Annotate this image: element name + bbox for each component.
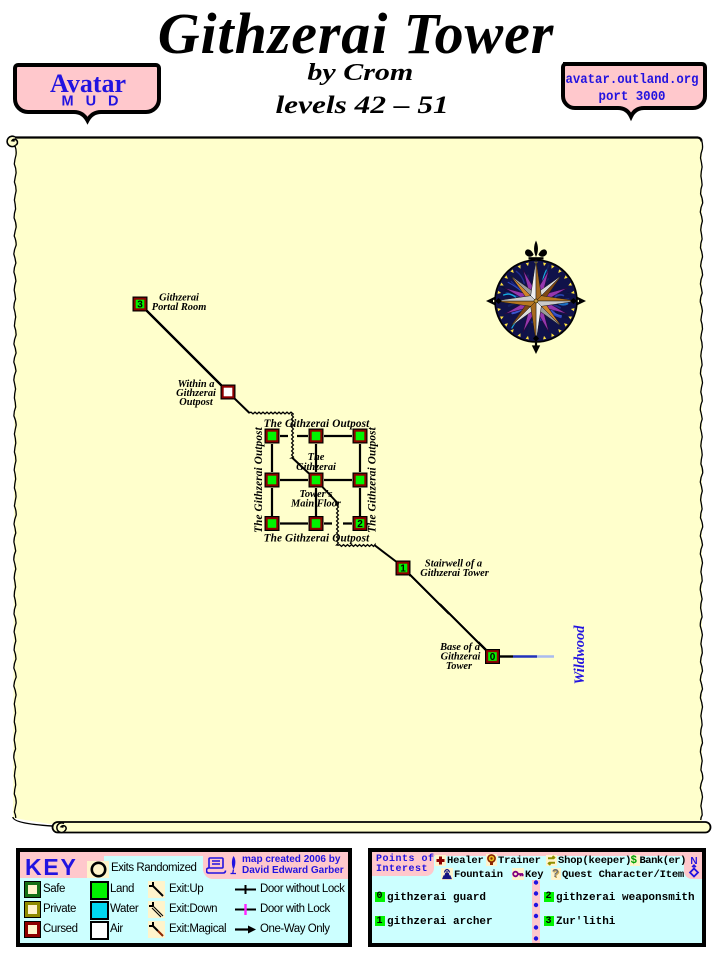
svg-text:Githzerai: Githzerai xyxy=(296,462,336,473)
svg-text:The Githzerai Outpost: The Githzerai Outpost xyxy=(367,426,379,532)
svg-text:Githzerai Tower: Githzerai Tower xyxy=(420,568,490,579)
svg-text:3: 3 xyxy=(137,300,143,311)
svg-text:The Githzerai Outpost: The Githzerai Outpost xyxy=(264,533,370,545)
svg-text:Portal Room: Portal Room xyxy=(152,302,207,313)
svg-text:Tower: Tower xyxy=(446,661,473,672)
svg-text:0: 0 xyxy=(490,652,496,663)
svg-text:2: 2 xyxy=(357,519,363,530)
svg-text:The Githzerai Outpost: The Githzerai Outpost xyxy=(264,418,370,430)
svg-text:Main Floor: Main Floor xyxy=(290,499,342,510)
svg-text:1: 1 xyxy=(400,564,406,575)
svg-text:avatar.outland.org: avatar.outland.org xyxy=(566,73,699,88)
svg-text:Outpost: Outpost xyxy=(179,397,214,408)
svg-text:MUD: MUD xyxy=(61,94,130,110)
svg-text:port 3000: port 3000 xyxy=(599,90,666,105)
svg-text:The Githzerai Outpost: The Githzerai Outpost xyxy=(253,426,265,532)
svg-text:Wildwood: Wildwood xyxy=(572,625,588,685)
